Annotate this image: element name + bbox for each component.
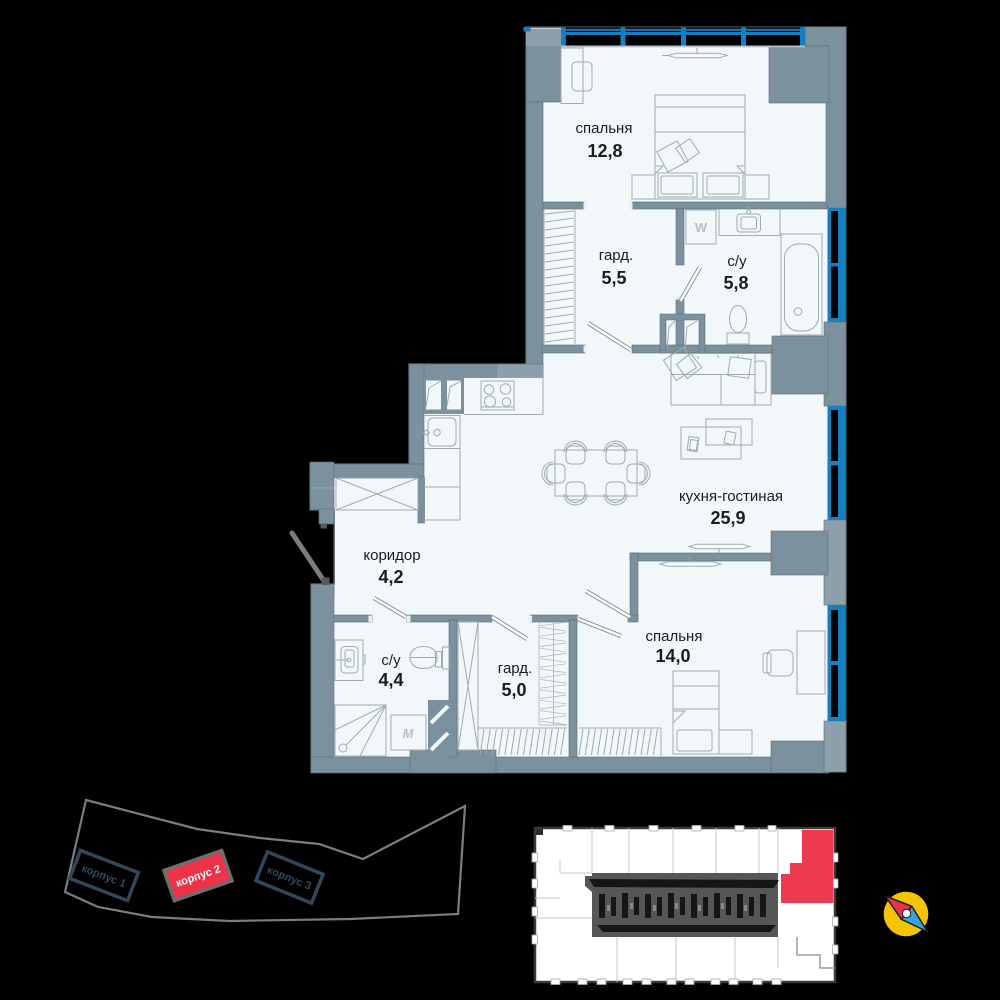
svg-text:спальня: спальня: [646, 628, 703, 645]
svg-text:M: M: [403, 726, 415, 741]
svg-text:5,8: 5,8: [723, 273, 748, 293]
svg-text:с/у: с/у: [381, 652, 401, 669]
svg-text:14,0: 14,0: [655, 646, 690, 666]
svg-text:5,0: 5,0: [501, 680, 526, 700]
svg-text:спальня: спальня: [576, 120, 633, 137]
svg-text:4,2: 4,2: [378, 567, 403, 587]
svg-text:коридор: коридор: [363, 547, 420, 564]
svg-text:5,5: 5,5: [601, 268, 626, 288]
svg-text:кухня-гостиная: кухня-гостиная: [679, 488, 783, 505]
svg-text:с/у: с/у: [727, 253, 747, 270]
svg-text:гард.: гард.: [498, 660, 532, 677]
svg-text:12,8: 12,8: [587, 141, 622, 161]
svg-text:25,9: 25,9: [710, 508, 745, 528]
svg-text:гард.: гард.: [599, 247, 633, 264]
svg-text:W: W: [695, 220, 708, 235]
svg-text:4,4: 4,4: [378, 670, 403, 690]
